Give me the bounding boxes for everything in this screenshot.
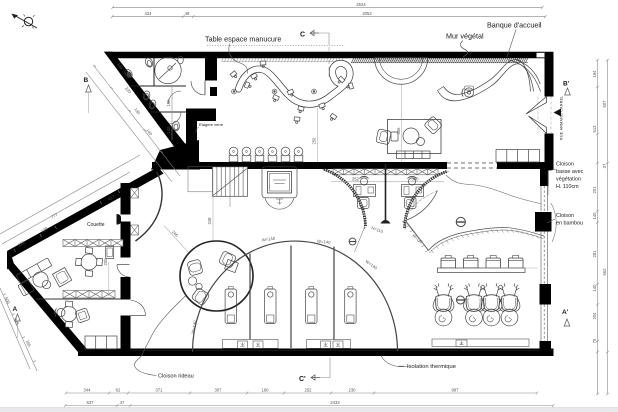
svg-text:Cloison: Cloison [556,162,574,168]
svg-text:360: 360 [412,177,420,182]
svg-text:H. 110cm: H. 110cm [556,184,579,190]
svg-text:75: 75 [592,338,597,343]
svg-text:37: 37 [602,163,607,168]
svg-text:344: 344 [84,388,92,393]
svg-text:végétation: végétation [556,177,581,183]
svg-text:194: 194 [592,70,597,78]
svg-text:C': C' [299,376,306,383]
svg-text:987: 987 [452,388,460,393]
svg-text:Banque d'accueil: Banque d'accueil [487,21,542,30]
svg-text:A': A' [562,309,569,316]
svg-text:200: 200 [103,258,108,266]
svg-text:424: 424 [145,11,153,16]
svg-text:166: 166 [166,99,171,107]
svg-text:250: 250 [312,137,317,145]
svg-text:en bambou: en bambou [556,221,583,227]
svg-text:252: 252 [305,388,313,393]
svg-text:Cloison: Cloison [556,213,574,219]
svg-text:607: 607 [602,100,607,108]
svg-text:537: 537 [87,400,95,405]
svg-text:513: 513 [592,125,597,133]
svg-text:201: 201 [592,186,597,194]
svg-text:48: 48 [185,11,190,16]
svg-text:146: 146 [166,126,171,134]
svg-text:47: 47 [120,400,125,405]
svg-text:Isolation thermique: Isolation thermique [407,364,456,370]
svg-text:204: 204 [592,312,597,320]
svg-text:662: 662 [602,268,607,276]
svg-text:248: 248 [207,217,212,225]
svg-text:466: 466 [396,127,401,135]
svg-text:basse avec: basse avec [556,169,584,175]
svg-text:A: A [13,306,18,313]
svg-text:Mur végétal: Mur végétal [446,32,484,41]
svg-text:160: 160 [262,388,270,393]
svg-text:62: 62 [116,388,121,393]
svg-text:2534: 2534 [356,2,366,7]
svg-text:Cloison rideau: Cloison rideau [158,374,194,380]
svg-text:2052: 2052 [362,11,372,16]
svg-text:140: 140 [592,212,597,220]
svg-text:2432: 2432 [330,400,340,405]
svg-text:140: 140 [592,284,597,292]
svg-text:371: 371 [156,388,164,393]
svg-text:C: C [300,32,305,39]
svg-text:352: 352 [352,177,360,182]
svg-text:Etagere verre: Etagere verre [199,122,224,127]
svg-text:230: 230 [349,388,357,393]
svg-text:Table espace manucure: Table espace manucure [205,35,281,44]
svg-text:B': B' [563,81,570,88]
svg-text:B: B [84,77,89,84]
svg-text:307: 307 [215,388,223,393]
svg-text:281: 281 [592,250,597,258]
svg-text:RUE ARMAND CARREL: RUE ARMAND CARREL [560,95,564,140]
svg-text:Couette: Couette [87,222,105,228]
